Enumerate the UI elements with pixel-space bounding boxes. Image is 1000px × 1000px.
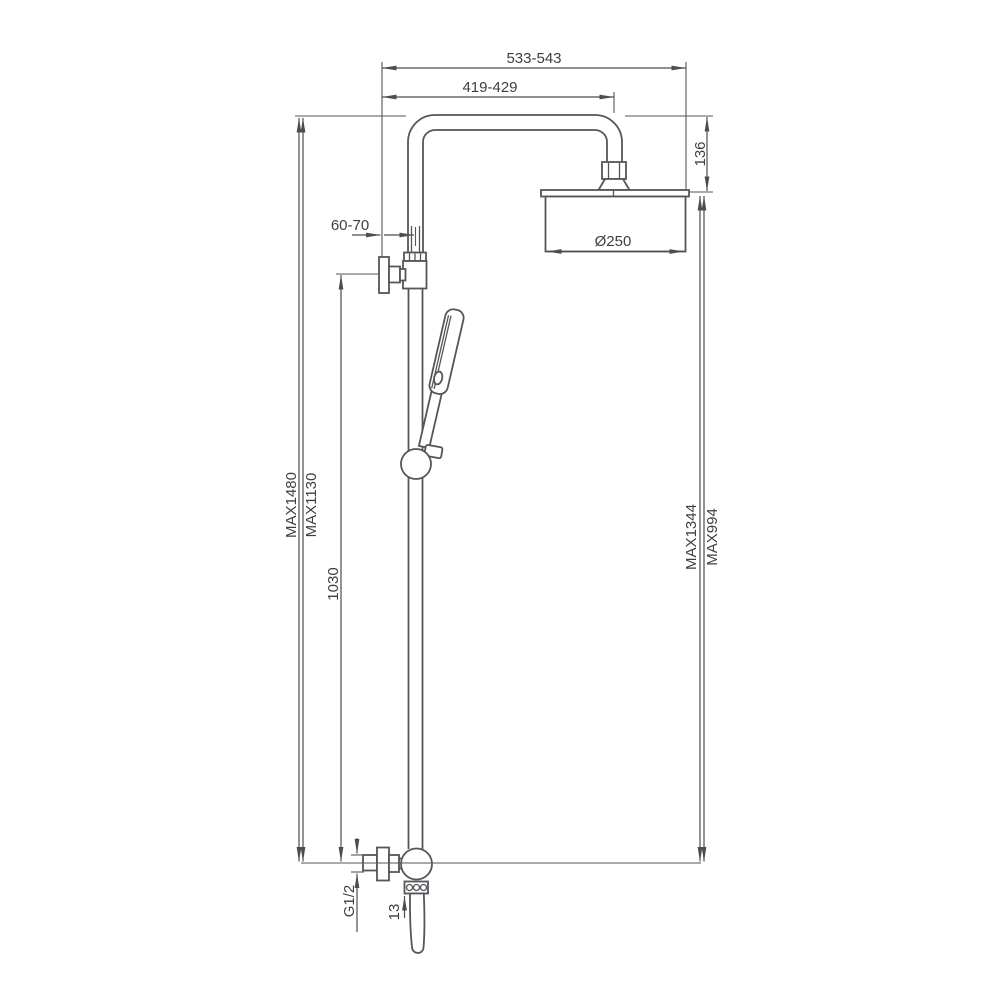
label-overall-reach: 533-543	[506, 50, 561, 67]
shower-system-dimension-drawing: 533-543 419-429 136 Ø250 60-70 MAX1480 M…	[0, 0, 1000, 1000]
label-head-diameter: Ø250	[595, 233, 632, 250]
head-connector-nut	[602, 162, 626, 179]
slider-holder-knob	[401, 449, 431, 479]
label-max1480: MAX1480	[283, 472, 300, 538]
label-arm-projection: 419-429	[462, 79, 517, 96]
bracket-housing	[403, 261, 427, 289]
dimension-labels: 533-543 419-429 136 Ø250 60-70 MAX1480 M…	[283, 50, 721, 920]
label-wall-offset: 60-70	[331, 217, 369, 234]
label-1030: 1030	[325, 567, 342, 600]
label-outlet-offset: 13	[386, 904, 403, 921]
shower-head-top-lip	[541, 190, 689, 197]
upper-bracket-nut	[389, 267, 400, 283]
outlet-knurled-nut	[405, 882, 429, 894]
label-inlet-thread: G1/2	[341, 885, 358, 918]
valve-handle	[410, 894, 424, 953]
technical-drawing-canvas: 533-543 419-429 136 Ø250 60-70 MAX1480 M…	[0, 0, 1000, 1000]
label-max1130: MAX1130	[303, 473, 320, 538]
head-connector-cone	[599, 179, 630, 190]
upper-wall-flange	[379, 257, 389, 293]
extension-lines	[295, 62, 713, 872]
lower-wall-flange	[377, 848, 389, 881]
label-max1344: MAX1344	[683, 504, 700, 570]
upper-bracket-stub	[400, 269, 406, 281]
label-head-drop: 136	[692, 141, 709, 166]
valve-body	[401, 849, 432, 880]
label-max994: MAX994	[704, 508, 721, 566]
shower-fixture	[363, 115, 689, 953]
